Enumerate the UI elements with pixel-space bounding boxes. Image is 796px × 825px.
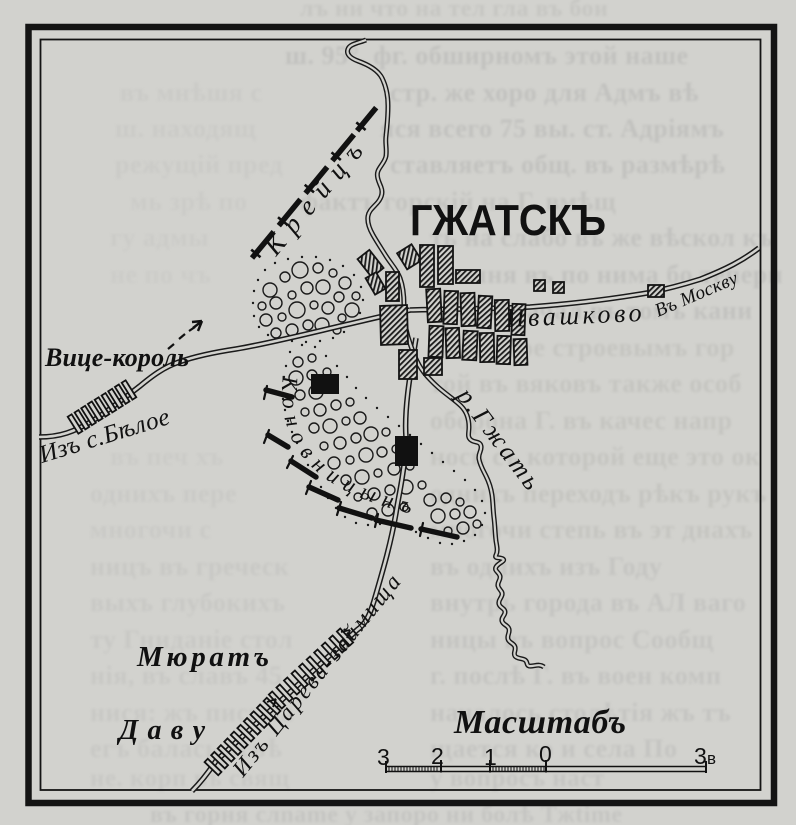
- svg-text:яся всего 75 вы. ст. Адріямъ: яся всего 75 вы. ст. Адріямъ: [380, 114, 724, 143]
- svg-text:ш. 95°, фг. обширномъ этой наш: ш. 95°, фг. обширномъ этой наше: [285, 41, 689, 70]
- svg-text:внутрь города въ АЛ ваго: внутрь города въ АЛ ваго: [430, 588, 746, 617]
- svg-text:3: 3: [377, 744, 390, 770]
- svg-text:многочи степь въ эт днахъ: многочи степь въ эт днахъ: [430, 515, 753, 544]
- svg-text:ницы въ вопрос Сообщ: ницы въ вопрос Сообщ: [430, 625, 714, 654]
- svg-text:ш. находящ: ш. находящ: [115, 114, 256, 143]
- svg-text:Ивашково: Ивашково: [504, 298, 644, 333]
- svg-text:3: 3: [694, 743, 707, 769]
- svg-text:Масштабъ: Масштабъ: [453, 704, 626, 741]
- svg-text:ГЖАТСКЪ: ГЖАТСКЪ: [410, 196, 606, 245]
- svg-text:не. корп въ свящ: не. корп въ свящ: [90, 765, 290, 792]
- svg-text:выхъ глубокихъ: выхъ глубокихъ: [90, 588, 286, 617]
- svg-text:въ печ хъ: въ печ хъ: [110, 442, 224, 471]
- svg-text:мь зрѣ по: мь зрѣ по: [130, 187, 247, 216]
- svg-text:в: в: [707, 749, 716, 768]
- svg-text:многочи с: многочи с: [90, 515, 211, 544]
- svg-text:2: 2: [431, 743, 444, 769]
- svg-text:стр. же хоро для Адмъ вѣ: стр. же хоро для Адмъ вѣ: [390, 78, 699, 107]
- svg-text:не по чъ: не по чъ: [110, 260, 211, 289]
- svg-text:режущій пред: режущій пред: [115, 150, 283, 179]
- svg-text:однихъ переходъ рѣкъ рукъ: однихъ переходъ рѣкъ рукъ: [430, 479, 767, 508]
- svg-text:0: 0: [539, 741, 552, 767]
- svg-text:Мюратъ: Мюратъ: [136, 641, 269, 673]
- svg-text:г. послѣ Г. въ воен комп: г. послѣ Г. въ воен комп: [430, 661, 721, 690]
- svg-text:Вице-король: Вице-король: [44, 343, 189, 372]
- svg-text:ницъ въ греческ: ницъ въ греческ: [90, 552, 289, 581]
- svg-text:1: 1: [484, 744, 497, 770]
- svg-text:въ однихъ изъ Году: въ однихъ изъ Году: [430, 552, 662, 581]
- svg-text:Даву: Даву: [116, 715, 206, 746]
- svg-text:гу адмы: гу адмы: [110, 223, 209, 252]
- svg-text:ставляетъ общ. въ размѣрѣ: ставляетъ общ. въ размѣрѣ: [390, 150, 725, 179]
- svg-text:лъ ни что на тел гла въ бои: лъ ни что на тел гла въ бои: [300, 0, 608, 22]
- svg-text:въ мнѣшя с: въ мнѣшя с: [120, 78, 262, 107]
- svg-text:однихъ пере: однихъ пере: [90, 479, 237, 508]
